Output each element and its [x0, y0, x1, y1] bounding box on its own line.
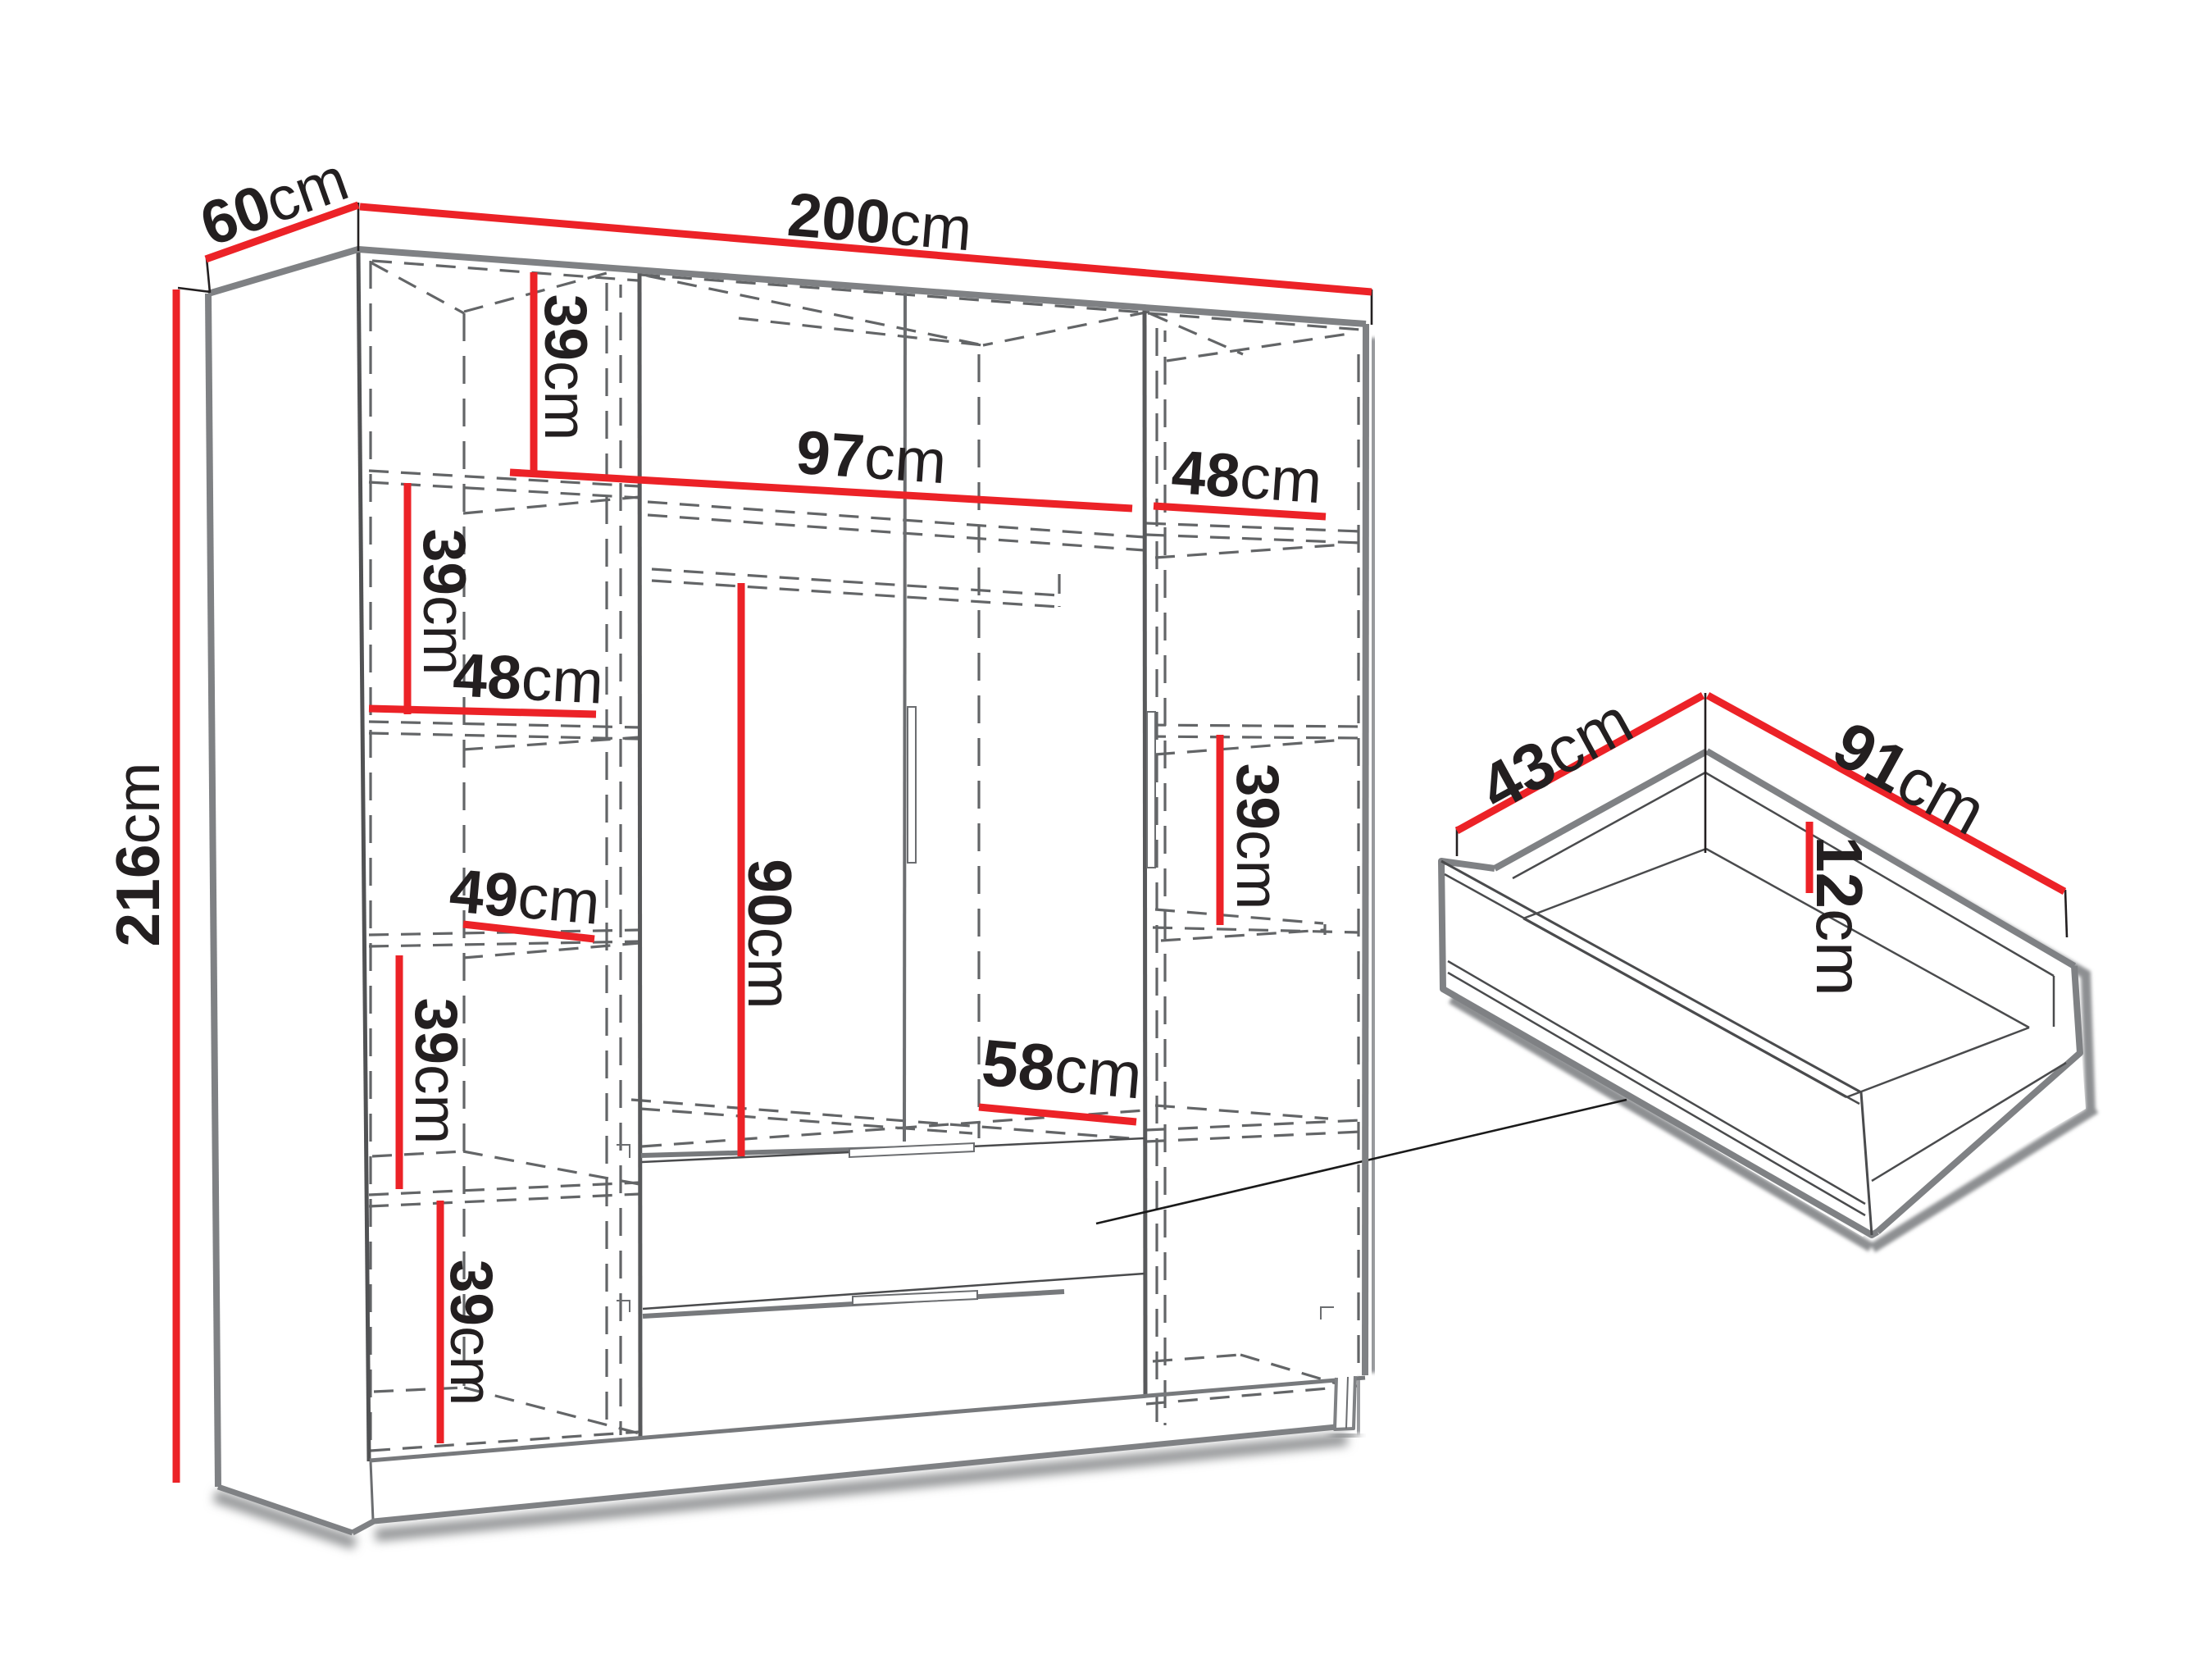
- svg-text:58cm: 58cm: [979, 1026, 1145, 1113]
- svg-text:216cm: 216cm: [103, 762, 172, 946]
- svg-text:91cm: 91cm: [1822, 708, 1997, 849]
- svg-text:39cm: 39cm: [1224, 763, 1290, 910]
- svg-text:12cm: 12cm: [1803, 836, 1876, 996]
- svg-text:48cm: 48cm: [452, 640, 606, 716]
- svg-text:39cm: 39cm: [403, 998, 469, 1145]
- svg-text:49cm: 49cm: [447, 855, 603, 937]
- svg-text:48cm: 48cm: [1169, 437, 1324, 517]
- svg-text:90cm: 90cm: [735, 859, 804, 1009]
- svg-text:39cm: 39cm: [438, 1260, 504, 1406]
- svg-text:60cm: 60cm: [192, 144, 357, 258]
- svg-text:39cm: 39cm: [532, 294, 599, 441]
- svg-text:97cm: 97cm: [794, 417, 949, 497]
